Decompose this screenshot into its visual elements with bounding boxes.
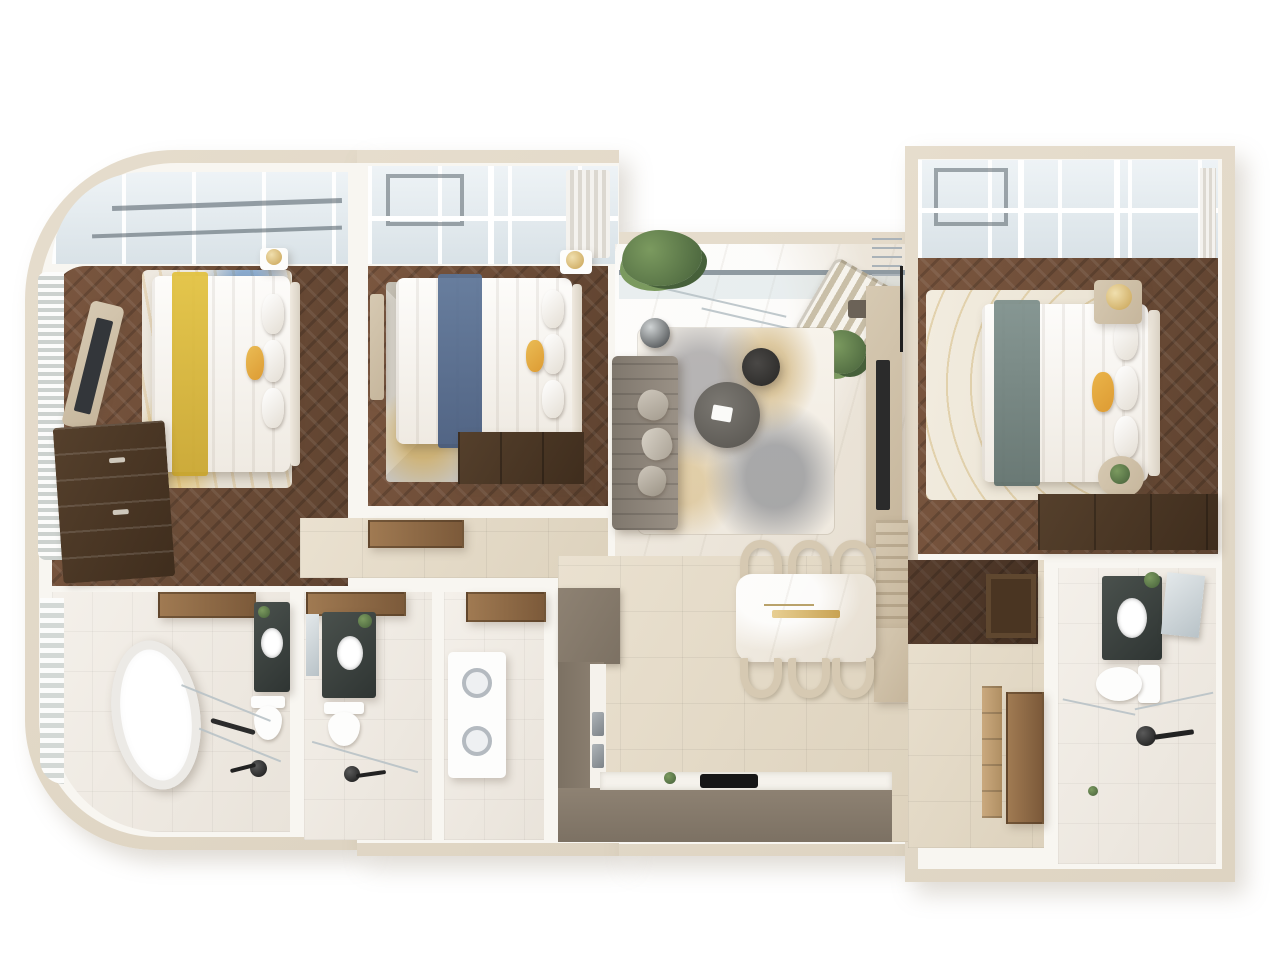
master-toilet: [1096, 662, 1162, 706]
hallway-open-door: [368, 520, 464, 548]
pillow: [1114, 366, 1138, 410]
toilet-bowl: [1096, 667, 1142, 701]
dining-table-gold-bar: [772, 610, 840, 618]
pillow-gold: [526, 340, 544, 372]
master-curtain: [1200, 168, 1216, 258]
bathroom2-vanity: [322, 612, 376, 698]
corridor-door: [1006, 692, 1044, 824]
sofa-pillow: [634, 386, 672, 424]
window-frame-bar: [92, 226, 342, 239]
bedroom1-lamp: [266, 249, 282, 265]
master-lamp: [1106, 284, 1132, 310]
window-mullion: [488, 166, 494, 264]
living-tv: [876, 360, 890, 510]
bedroom2-lamp: [566, 251, 584, 269]
bathroom2-mirror: [306, 614, 319, 676]
pillow: [262, 340, 284, 382]
ac-grille: [872, 238, 902, 280]
kitchen-tall-cabinet: [558, 588, 620, 664]
pillow: [1114, 416, 1138, 458]
pillow: [262, 294, 284, 334]
kitchen-sink-1: [592, 712, 604, 736]
drawer-handle: [113, 509, 129, 515]
corridor-cabinet-door: [986, 574, 1036, 638]
window-frame-bar: [112, 198, 342, 211]
kitchen-base-cabinets: [558, 788, 892, 842]
window-mullion: [918, 208, 1218, 213]
bedroom2-console: [370, 294, 384, 400]
coffee-table-paper: [711, 404, 733, 422]
master-headboard: [1148, 310, 1160, 476]
bedroom2-bed: [396, 278, 572, 444]
dining-sideboard: [876, 520, 908, 628]
kitchen-tall-unit: [874, 628, 908, 702]
corridor-shelving: [982, 686, 1002, 818]
vanity-plant: [258, 606, 270, 618]
window-sash: [934, 168, 1008, 226]
pillow-gold: [246, 346, 264, 380]
bed-runner-blue: [438, 274, 482, 448]
kitchen-cooktop: [700, 774, 758, 788]
sofa-pillow: [635, 463, 669, 498]
master-wardrobe: [1038, 494, 1218, 550]
pillow: [542, 380, 564, 418]
washer-door: [462, 668, 492, 698]
bathroom1-sink: [261, 628, 283, 658]
pillow: [262, 388, 284, 428]
bedroom1-headboard: [290, 282, 300, 466]
bathroom1-vanity: [254, 602, 290, 692]
sphere-floor-lamp: [640, 318, 670, 348]
floor-plant-accent: [1088, 786, 1098, 796]
bathroom1-door-leaf: [158, 592, 256, 618]
bedroom1-dresser: [53, 420, 176, 583]
master-mirror: [1161, 572, 1205, 638]
bathroom2-sink: [337, 636, 363, 670]
kitchen-plant: [664, 772, 676, 784]
sofa-pillow: [639, 425, 676, 463]
bed-runner-yellow: [172, 272, 208, 476]
bathroom2-toilet: [318, 702, 370, 748]
vanity-plant: [358, 614, 372, 628]
sliding-door-track: [900, 266, 903, 352]
pillow: [542, 290, 564, 328]
floor-plan-render: [0, 0, 1280, 960]
dryer-door: [462, 726, 492, 756]
bedroom1-bay-glazing: [52, 172, 348, 264]
master-sink: [1117, 598, 1147, 638]
master-shower-head: [1136, 726, 1156, 746]
master-vanity: [1102, 576, 1162, 660]
toilet-bowl: [328, 712, 360, 746]
coffee-table-small: [742, 348, 780, 386]
pillow-orange: [1092, 372, 1114, 412]
laundry-door-leaf: [466, 592, 546, 622]
nightstand-plant: [1110, 464, 1130, 484]
pillow: [542, 334, 564, 374]
toilet-bowl: [254, 706, 282, 740]
bedroom2-headboard: [572, 284, 582, 438]
living-sofa: [612, 356, 678, 530]
laundry-washer-stack: [448, 652, 506, 778]
dining-table-detail: [764, 604, 814, 606]
dining-table: [736, 574, 876, 662]
bedroom1-bed: [152, 276, 290, 472]
master-window: [918, 160, 1218, 258]
pillow: [1114, 318, 1138, 360]
bathroom1-curved-window: [40, 598, 64, 784]
bedroom2-wardrobe: [458, 432, 584, 484]
vanity-plant: [1144, 572, 1160, 588]
kitchen-sink-2: [592, 744, 604, 768]
drawer-handle: [109, 457, 125, 463]
bed-runner-teal: [994, 300, 1040, 486]
bedroom2-curtain: [566, 170, 610, 258]
